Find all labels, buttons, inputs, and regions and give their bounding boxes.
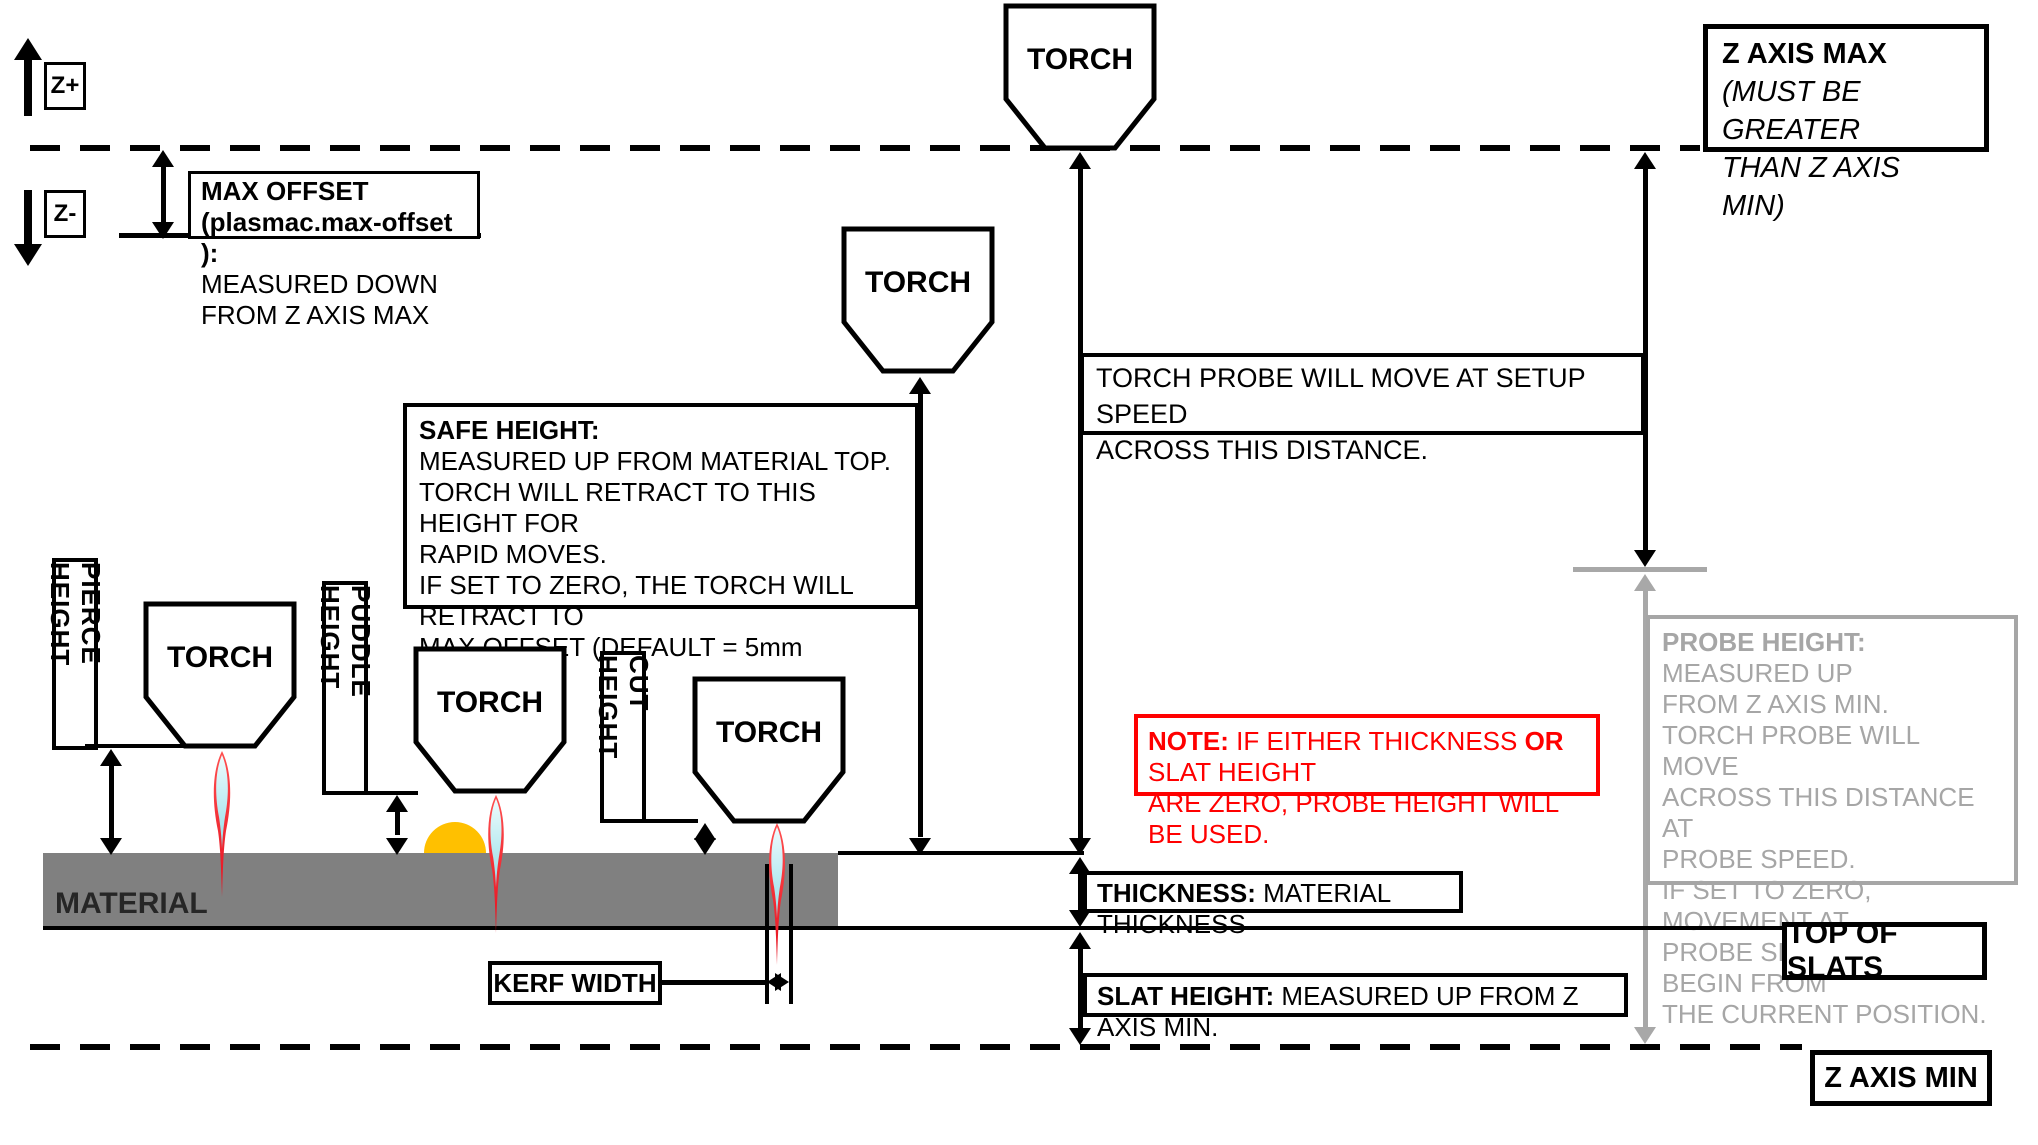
z-axis-max-title: Z AXIS MAX [1722,35,1970,73]
probe-height-line: ACROSS THIS DISTANCE AT [1662,782,2002,844]
puddle-flame [479,793,513,935]
z-axis-max-box: Z AXIS MAX (MUST BE GREATER THAN Z AXIS … [1703,24,1989,152]
note-title: NOTE: [1148,726,1229,756]
max-offset-box: MAX OFFSET (plasmac.max-offset ): MEASUR… [188,171,480,239]
material-bottom-line [43,926,1084,930]
cut-arrow-bottom [694,838,716,855]
torch-label: TORCH [1003,3,1157,151]
top-of-slats-box: TOP OF SLATS [1782,922,1987,980]
safe-height-line: TORCH WILL RETRACT TO THIS HEIGHT FOR [419,477,903,539]
probe-height-line: THE CURRENT POSITION. [1662,999,2002,1030]
slat-height-box: SLAT HEIGHT: MEASURED UP FROM Z AXIS MIN… [1083,973,1628,1017]
slat-arrow-bottom [1069,1028,1091,1045]
safe-height-box: SAFE HEIGHT: MEASURED UP FROM MATERIAL T… [403,403,919,609]
torch-at-cut-height: TORCH [692,676,846,824]
pierce-arrow-bottom [100,838,122,855]
note-line2: ARE ZERO, PROBE HEIGHT WILL BE USED. [1148,788,1586,850]
safe-height-title: SAFE HEIGHT: [419,415,903,446]
puddle-arrow-shaft [395,807,400,835]
cut-height-ref-line [638,819,698,823]
thickness-title: THICKNESS: [1097,878,1256,908]
slat-height-title: SLAT HEIGHT: [1097,981,1274,1011]
probe-span-arrow-bottom [1634,1027,1656,1044]
pierce-height-label: PIERCE HEIGHT [44,562,106,746]
molten-puddle [424,822,486,853]
probe-height-line: FROM Z AXIS MIN. [1662,689,2002,720]
probe-height-title: PROBE HEIGHT: [1662,627,1866,657]
torch-probe-box: TORCH PROBE WILL MOVE AT SETUP SPEED ACR… [1080,353,1645,435]
setup-travel-arrow-shaft [1078,166,1083,842]
z-axis-min-label: Z AXIS MIN [1824,1062,1978,1095]
material-label: MATERIAL [55,887,208,921]
probe-height-title-rest: MEASURED UP [1662,658,1853,688]
torch-at-pierce-height: TORCH [143,601,297,749]
pierce-height-label-box: PIERCE HEIGHT [52,558,98,750]
z-plus-arrow-shaft [24,58,32,116]
cut-height-label-box: CUT HEIGHT [600,651,646,823]
safe-height-arrow-shaft [918,391,923,837]
probe-height-box: PROBE HEIGHT: MEASURED UP FROM Z AXIS MI… [1646,615,2018,885]
z-axis-min-box: Z AXIS MIN [1810,1050,1992,1106]
z-minus-arrow-shaft [24,190,32,246]
torch-label: TORCH [143,601,297,749]
note-text2: SLAT HEIGHT [1148,757,1316,787]
kerf-width-box: KERF WIDTH [488,961,662,1005]
torch-at-safe-height: TORCH [841,226,995,374]
probe-height-line: PROBE SPEED. [1662,844,2002,875]
z-minus-label: Z- [54,200,77,228]
kerf-connector-line [662,980,765,985]
max-offset-body: MEASURED DOWN FROM Z AXIS MAX [201,269,438,330]
torch-at-puddle-height: TORCH [413,646,567,794]
pierce-flame [205,748,239,900]
plasmac-height-diagram: Z+ Z- MAX OFFSET (plasmac.max-offset ): … [0,0,2038,1145]
note-text: IF EITHER THICKNESS [1229,726,1525,756]
z-minus-label-box: Z- [44,190,86,238]
kerf-width-label: KERF WIDTH [493,968,656,999]
z-axis-min-dashed-line [30,1044,1802,1050]
safe-height-line: IF SET TO ZERO, THE TORCH WILL RETRACT T… [419,570,903,632]
thickness-box: THICKNESS: MATERIAL THICKNESS [1083,871,1463,913]
z-plus-label-box: Z+ [44,62,86,110]
z-plus-label: Z+ [51,72,80,100]
z-minus-arrow-icon [14,244,42,266]
torch-probe-line1: TORCH PROBE WILL MOVE AT SETUP SPEED [1096,360,1629,432]
z-axis-max-line2: (MUST BE GREATER [1722,73,1970,149]
torch-label: TORCH [692,676,846,824]
torch-probe-line2: ACROSS THIS DISTANCE. [1096,432,1629,468]
note-box: NOTE: IF EITHER THICKNESS OR SLAT HEIGHT… [1134,714,1600,796]
puddle-height-label-box: PUDDLE HEIGHT [322,581,368,795]
material-top-extension-line [838,851,1084,855]
pierce-arrow-shaft [109,762,114,840]
z-axis-max-dashed-line [30,145,1700,151]
probe-height-tick-line [1573,567,1707,572]
max-offset-title: MAX OFFSET (plasmac.max-offset ): [201,176,452,268]
puddle-height-label: PUDDLE HEIGHT [314,585,376,791]
safe-height-line: MEASURED UP FROM MATERIAL TOP. [419,446,903,477]
z-axis-max-line3: THAN Z AXIS MIN) [1722,149,1970,225]
torch-label: TORCH [841,226,995,374]
puddle-arrow-bottom [386,838,408,855]
material-bar: MATERIAL [43,853,838,930]
max-offset-arrow-shaft [161,164,166,226]
safe-height-line: RAPID MOVES. [419,539,903,570]
top-of-slats-line [1082,926,1782,930]
z-plus-arrow-icon [14,38,42,60]
kerf-arrow-right [775,973,789,991]
top-of-slats-label: TOP OF SLATS [1787,917,1982,985]
note-or: OR [1525,726,1564,756]
torch-at-z-max: TORCH [1003,3,1157,151]
torch-label: TORCH [413,646,567,794]
zmax-span-arrow-bottom [1634,550,1656,567]
probe-height-line: TORCH PROBE WILL MOVE [1662,720,2002,782]
cut-flame [760,821,794,967]
cut-height-label: CUT HEIGHT [592,655,654,819]
